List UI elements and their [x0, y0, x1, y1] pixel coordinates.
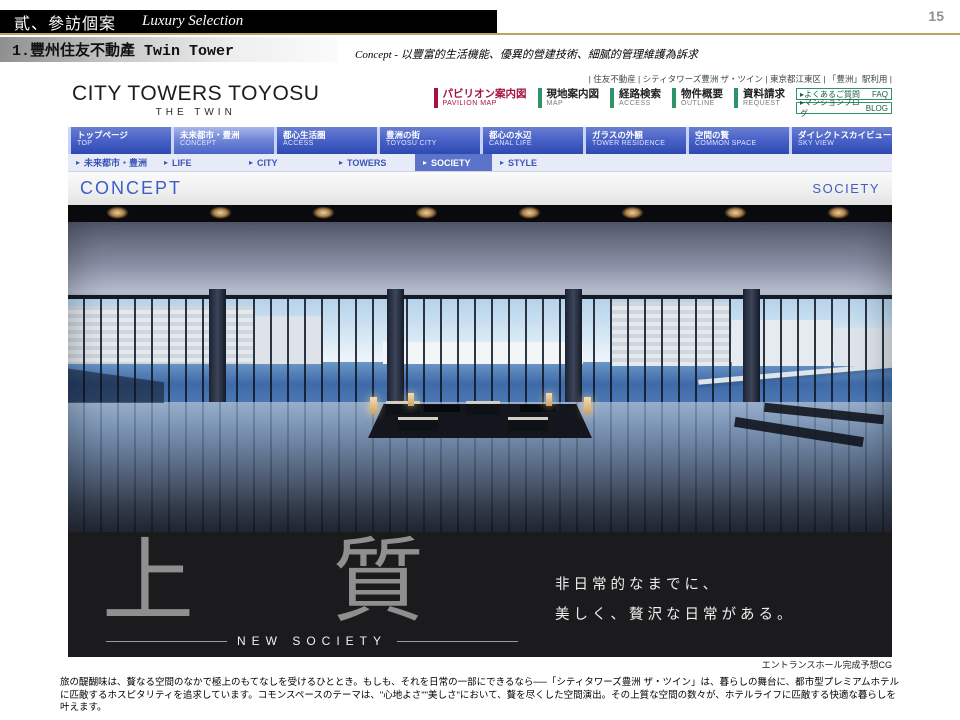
utility-nav-pavilion-map[interactable]: パビリオン案内図 PAVILION MAP — [434, 88, 527, 108]
subnav-label: STYLE — [508, 158, 537, 168]
photo-vignette — [68, 205, 892, 532]
subnav-label: LIFE — [172, 158, 192, 168]
slide-title-en: Luxury Selection — [142, 13, 243, 30]
utility-nav-outline[interactable]: 物件概要 OUTLINE — [672, 88, 723, 108]
subnav-item-life[interactable]: ▸ LIFE — [156, 154, 241, 171]
hero-copy: 非日常的なまでに、 美しく、贅沢な日常がある。 — [555, 570, 796, 631]
nav-label-en: CONCEPT — [180, 140, 274, 148]
nav-tab-toyosu-city[interactable]: 豊洲の街 TOYOSU CITY — [377, 127, 480, 154]
nav-label-jp: ダイレクトスカイビュー — [798, 130, 892, 140]
new-society-label: NEW SOCIETY — [237, 634, 387, 648]
utility-label-en: ACCESS — [619, 100, 661, 108]
nav-label-en: SKY VIEW — [798, 140, 892, 148]
utility-nav-map[interactable]: 現地案内図 MAP — [538, 88, 600, 108]
utility-label-jp: 資料請求 — [743, 88, 785, 100]
caption-row: エントランスホール完成予想CG — [68, 657, 892, 671]
nav-label-jp: 未来都市・豊洲 — [180, 130, 274, 140]
nav-label-jp: ガラスの外観 — [592, 130, 686, 140]
utility-nav-request[interactable]: 資料請求 REQUEST — [734, 88, 785, 108]
subnav-item-style[interactable]: ▸ STYLE — [492, 154, 578, 171]
site-header: CITY TOWERS TOYOSU THE TWIN | 住友不動産 | シテ… — [68, 75, 892, 127]
page-number: 15 — [928, 8, 944, 24]
subnav-label: TOWERS — [347, 158, 386, 168]
gold-divider — [0, 33, 960, 35]
slide-body-paragraph: 旅の醍醐味は、贅なる空間のなかで極上のもてなしを受けるひととき。もしも、それを日… — [60, 677, 903, 715]
utility-label-jp: 現地案内図 — [547, 88, 600, 100]
arrow-icon: ▸ — [164, 158, 168, 167]
subnav-label: 未来都市・豊洲 — [84, 156, 147, 169]
nav-label-jp: 都心の水辺 — [489, 130, 583, 140]
slide-title-bar: 貳、參訪個案 Luxury Selection — [0, 10, 497, 33]
link-boxes: ▸よくあるご質問 FAQ ▸マンションブログ BLOG — [796, 88, 892, 114]
arrow-icon: ▸ — [339, 158, 343, 167]
utility-label-en: PAVILION MAP — [443, 100, 527, 108]
subnav-item-mirai[interactable]: ▸ 未来都市・豊洲 — [68, 154, 156, 171]
main-nav: トップページ TOP 未来都市・豊洲 CONCEPT 都心生活圏 ACCESS … — [68, 127, 892, 154]
rule-line — [106, 641, 227, 642]
nav-label-en: TOWER RESIDENCE — [592, 140, 686, 148]
nav-tab-concept[interactable]: 未来都市・豊洲 CONCEPT — [171, 127, 274, 154]
utility-nav-access[interactable]: 経路検索 ACCESS — [610, 88, 661, 108]
blog-label: マンションブログ — [800, 98, 860, 118]
rule-line — [397, 641, 518, 642]
arrow-icon: ▸ — [500, 158, 504, 167]
utility-label-jp: 経路検索 — [619, 88, 661, 100]
section-heading-bar: CONCEPT SOCIETY — [68, 172, 892, 205]
site-logo-line1: CITY TOWERS TOYOSU — [72, 82, 319, 106]
image-caption: エントランスホール完成予想CG — [762, 658, 892, 671]
site-logo-line2: THE TWIN — [72, 107, 319, 118]
arrow-icon: ▸ — [249, 158, 253, 167]
website-screenshot: CITY TOWERS TOYOSU THE TWIN | 住友不動産 | シテ… — [68, 75, 892, 671]
subnav-item-towers[interactable]: ▸ TOWERS — [331, 154, 415, 171]
site-tagline: | 住友不動産 | シティタワーズ豊洲 ザ・ツイン | 東京都江東区 | 「豊洲… — [589, 73, 892, 85]
nav-label-jp: 空間の贅 — [695, 130, 789, 140]
sub-nav: ▸ 未来都市・豊洲 ▸ LIFE ▸ CITY ▸ TOWERS ▸ SOCIE… — [68, 154, 892, 172]
nav-tab-tower-residence[interactable]: ガラスの外観 TOWER RESIDENCE — [583, 127, 686, 154]
subnav-item-city[interactable]: ▸ CITY — [241, 154, 331, 171]
nav-label-en: TOYOSU CITY — [386, 140, 480, 148]
nav-tab-top[interactable]: トップページ TOP — [68, 127, 171, 154]
utility-label-jp: 物件概要 — [681, 88, 723, 100]
utility-label-jp: パビリオン案内図 — [443, 88, 527, 100]
nav-label-jp: トップページ — [77, 130, 171, 140]
arrow-icon: ▸ — [76, 158, 80, 167]
nav-tab-access[interactable]: 都心生活圏 ACCESS — [274, 127, 377, 154]
kanji-jou: 上 — [102, 534, 194, 631]
blog-link[interactable]: ▸マンションブログ BLOG — [796, 102, 892, 114]
hero-copy-line2: 美しく、贅沢な日常がある。 — [555, 600, 796, 630]
faq-tag: FAQ — [872, 90, 888, 99]
nav-label-en: CANAL LIFE — [489, 140, 583, 148]
arrow-icon: ▸ — [423, 158, 427, 167]
nav-label-jp: 都心生活圏 — [283, 130, 377, 140]
nav-label-en: COMMON SPACE — [695, 140, 789, 148]
nav-label-en: TOP — [77, 140, 171, 148]
nav-label-jp: 豊洲の街 — [386, 130, 480, 140]
kanji-shitsu: 質 — [332, 534, 424, 631]
nav-label-en: ACCESS — [283, 140, 377, 148]
subnav-item-society[interactable]: ▸ SOCIETY — [415, 154, 492, 171]
hero-image-entrance-hall — [68, 205, 892, 532]
slide-subtitle: 1.豐州住友不動產 Twin Tower — [12, 39, 234, 60]
brand-band: 上 質 NEW SOCIETY 非日常的なまでに、 美しく、贅沢な日常がある。 — [68, 532, 892, 657]
slide-subtitle-band: 1.豐州住友不動產 Twin Tower — [0, 37, 338, 62]
hero-copy-line1: 非日常的なまでに、 — [555, 570, 796, 600]
new-society-rule: NEW SOCIETY — [106, 634, 518, 648]
utility-label-en: REQUEST — [743, 100, 785, 108]
concept-note: Concept - 以豐富的生活機能、優異的營建技術、細膩的管理維護為訴求 — [355, 46, 698, 62]
nav-tab-sky-view[interactable]: ダイレクトスカイビュー SKY VIEW — [789, 127, 892, 154]
nav-tab-canal-life[interactable]: 都心の水辺 CANAL LIFE — [480, 127, 583, 154]
subnav-label: CITY — [257, 158, 278, 168]
blog-tag: BLOG — [866, 104, 888, 113]
subnav-label: SOCIETY — [431, 158, 471, 168]
site-logo[interactable]: CITY TOWERS TOYOSU THE TWIN — [72, 82, 319, 118]
section-subtitle: SOCIETY — [812, 181, 880, 196]
nav-tab-common-space[interactable]: 空間の贅 COMMON SPACE — [686, 127, 789, 154]
utility-nav: パビリオン案内図 PAVILION MAP 現地案内図 MAP 経路検索 ACC… — [434, 88, 893, 114]
slide-title-zh: 貳、參訪個案 — [14, 10, 116, 34]
utility-label-en: OUTLINE — [681, 100, 723, 108]
section-title: CONCEPT — [80, 178, 182, 199]
utility-label-en: MAP — [547, 100, 600, 108]
